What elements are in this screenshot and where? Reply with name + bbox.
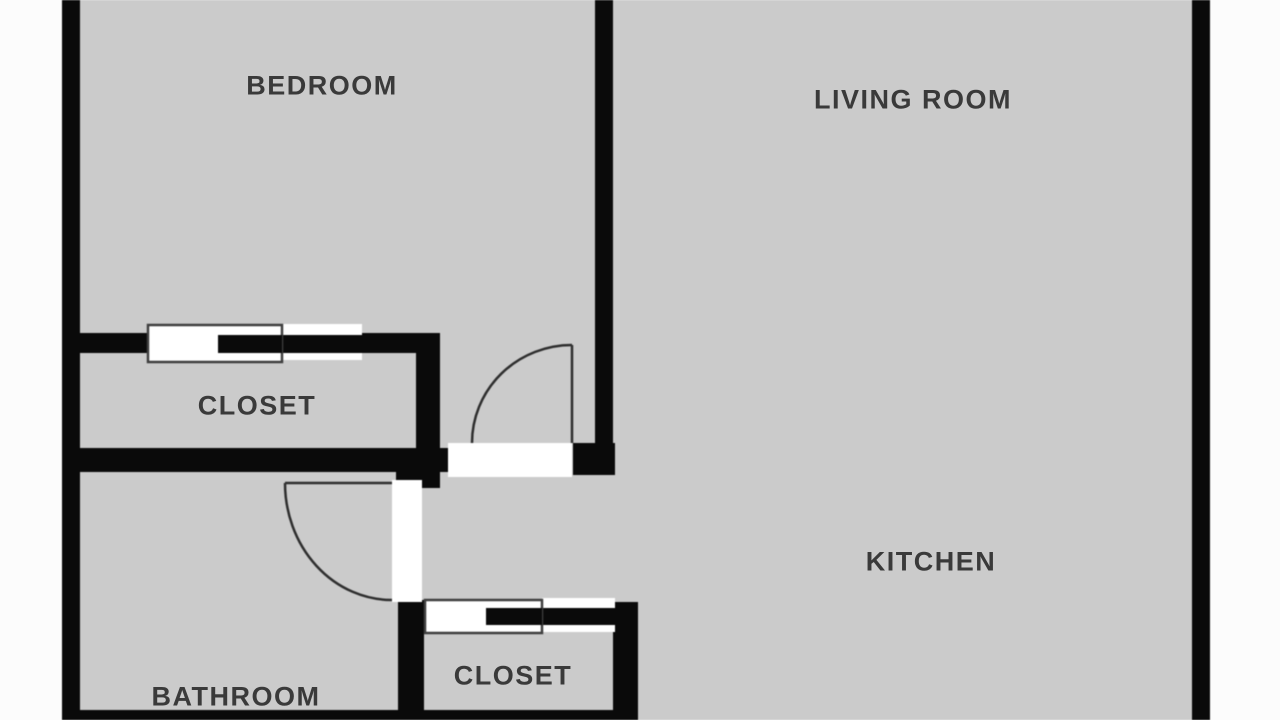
closet1-door-track-notch [218,335,282,353]
wall-bottom-exterior [62,710,638,720]
wall-hall-door-jamb-right [573,443,615,475]
wall-bedroom-living-divider [595,0,613,450]
wall-exterior-right [1192,0,1210,720]
wall-closet1-bottom [62,448,450,472]
closet1-bypass-door [148,324,362,362]
closet1-wall-overlay [282,335,362,353]
hall-door-opening [448,443,572,477]
floor-plan-drawing [0,0,1280,720]
wall-bathroom-right [398,600,424,720]
wall-exterior-left [62,0,80,720]
wall-closet2-right [613,602,638,720]
floor-plan-page: BEDROOM LIVING ROOM CLOSET KITCHEN BATHR… [0,0,1280,720]
closet2-door-track-notch [486,608,542,625]
closet2-wall-overlay [542,608,615,625]
bathroom-door-opening [392,480,422,602]
closet2-bypass-door [425,598,615,633]
